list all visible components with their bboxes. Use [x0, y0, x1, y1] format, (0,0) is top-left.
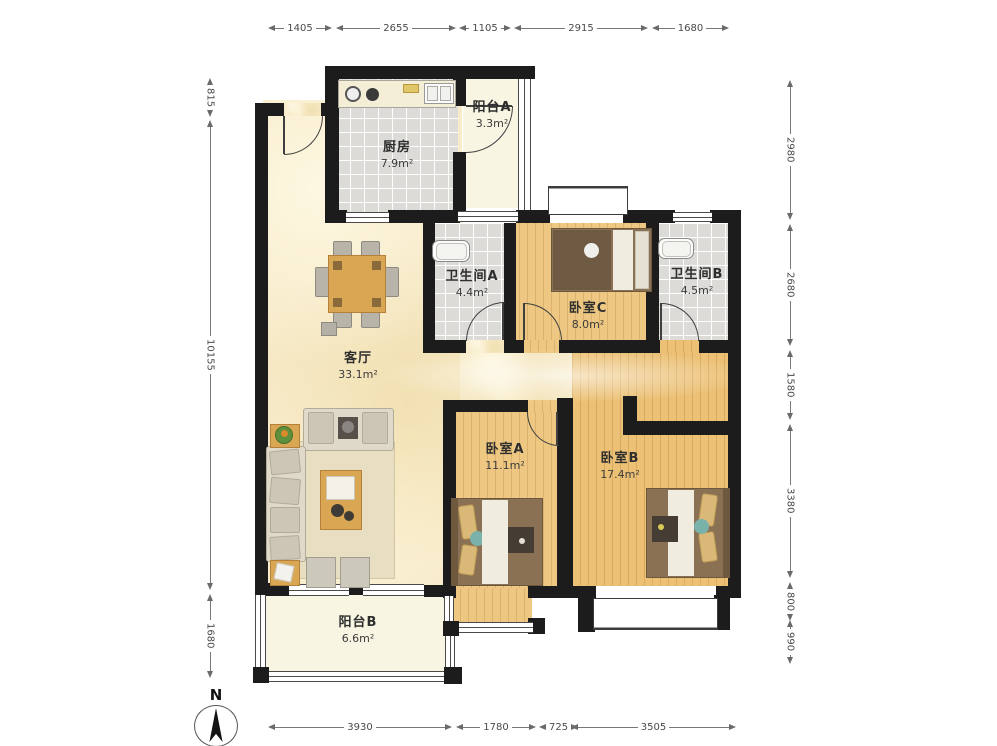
floorplan-canvas: 厨房7.9m² 阳台A3.3m² 卫生间A4.4m² 卧室C8.0m² 卫生间B… — [0, 0, 997, 746]
sofa-cushion — [269, 477, 301, 506]
sink-basin — [440, 86, 451, 101]
wall-segment — [330, 66, 535, 79]
wall-segment — [423, 340, 466, 353]
sofa-cushion — [269, 535, 301, 561]
dimension-top-3: 1105 — [459, 21, 511, 35]
planter — [321, 322, 337, 336]
dimension-top-4: 2915 — [514, 21, 648, 35]
window — [263, 671, 447, 682]
sofa-cushion — [269, 448, 301, 475]
dimension-right-1: 2980 — [783, 80, 797, 220]
sofa-cushion — [308, 412, 334, 444]
dimension-bottom-1: 3930 — [268, 720, 452, 734]
wall-segment — [516, 210, 550, 223]
wall-post — [253, 667, 269, 683]
wall-segment — [321, 103, 338, 116]
wall-segment — [388, 210, 460, 223]
dimension-top-5: 1680 — [652, 21, 729, 35]
bathtub-inner — [662, 241, 691, 257]
door-leaf — [556, 412, 558, 445]
window — [518, 79, 531, 210]
coffee-table-tray — [326, 476, 355, 500]
place-setting — [372, 298, 381, 307]
floor-patch — [282, 103, 323, 116]
stove-burner — [345, 86, 361, 102]
dining-chair — [384, 267, 399, 297]
ottoman — [340, 557, 370, 588]
wall-segment — [623, 210, 675, 223]
dimension-top-2: 2655 — [336, 21, 456, 35]
wall-segment — [325, 66, 339, 216]
dimension-left-2: 10155 — [203, 120, 217, 590]
kitchen-item — [403, 84, 419, 93]
bay-window — [548, 186, 628, 215]
door-leaf — [523, 303, 525, 340]
sliding-door — [363, 584, 424, 596]
sofa-side-table-top — [342, 421, 354, 433]
teacup — [344, 511, 354, 521]
bed-duvet — [482, 500, 508, 584]
floor-bedroom-a-bay — [452, 588, 532, 626]
bed-headboard — [451, 498, 458, 586]
room-label-kitchen: 厨房7.9m² — [352, 140, 442, 171]
wall-segment — [557, 440, 573, 588]
door-leaf — [283, 116, 285, 154]
bed-phone — [584, 243, 599, 258]
bed-throw-dot — [658, 524, 664, 530]
wall-post — [443, 621, 459, 636]
dimension-right-5: 800 — [783, 582, 797, 616]
north-arrow-icon — [205, 708, 227, 742]
bed-sheet — [613, 230, 633, 290]
room-label-bathroom-b: 卫生间B4.5m² — [652, 267, 742, 298]
room-label-bedroom-a: 卧室A11.1m² — [460, 442, 550, 473]
dimension-right-2: 2680 — [783, 224, 797, 346]
dimension-bottom-4: 3505 — [571, 720, 736, 734]
window — [458, 211, 518, 222]
dimension-right-3: 1580 — [783, 350, 797, 420]
wall-post — [444, 667, 462, 684]
bed-pillow — [635, 231, 649, 289]
north-indicator: N — [188, 686, 244, 746]
stove-burner — [366, 88, 379, 101]
room-label-bedroom-c: 卧室C8.0m² — [543, 301, 633, 332]
room-label-bathroom-a: 卫生间A4.4m² — [427, 269, 517, 300]
dimension-left-3: 1680 — [203, 594, 217, 678]
window — [255, 595, 266, 673]
dimension-right-4: 3380 — [783, 424, 797, 578]
dimension-right-6: 990 — [783, 620, 797, 664]
bed-throw-dot — [519, 538, 525, 544]
wall-segment — [557, 398, 573, 442]
plant-flower — [281, 430, 288, 437]
ottoman — [306, 557, 336, 588]
door-leaf — [660, 303, 662, 340]
sofa-cushion — [270, 507, 300, 533]
dimension-bottom-3: 725 — [539, 720, 568, 734]
compass-circle — [194, 705, 238, 746]
window — [445, 634, 455, 671]
sink-basin — [427, 86, 438, 101]
bay-window — [593, 598, 718, 630]
dimension-top-1: 1405 — [268, 21, 332, 35]
wall-segment — [325, 210, 347, 223]
bed-throw — [652, 516, 678, 542]
door-leaf — [502, 302, 504, 340]
teapot — [331, 504, 344, 517]
window — [673, 212, 712, 222]
bed-duvet — [553, 230, 611, 290]
dimension-left-1: 815 — [203, 78, 217, 116]
place-setting — [333, 298, 342, 307]
bathtub-inner — [436, 243, 467, 260]
room-label-living: 客厅33.1m² — [313, 351, 403, 382]
place-setting — [333, 261, 342, 270]
window — [453, 622, 533, 633]
side-table-item — [273, 562, 294, 582]
room-label-balcony-a: 阳台A3.3m² — [447, 100, 537, 131]
place-setting — [372, 261, 381, 270]
dining-chair — [361, 312, 380, 328]
room-label-balcony-b: 阳台B6.6m² — [313, 615, 403, 646]
wall-segment — [559, 340, 660, 353]
watermark-smudge — [380, 350, 750, 402]
sofa-cushion — [362, 412, 388, 444]
sliding-door — [346, 212, 389, 223]
room-label-bedroom-b: 卧室B17.4m² — [575, 451, 665, 482]
dimension-bottom-2: 1780 — [456, 720, 536, 734]
north-label: N — [188, 686, 244, 704]
bed-headboard — [723, 488, 730, 578]
wall-segment — [623, 421, 730, 435]
bed-accent — [694, 519, 709, 534]
wall-segment — [699, 340, 741, 353]
wall-segment — [453, 152, 466, 212]
